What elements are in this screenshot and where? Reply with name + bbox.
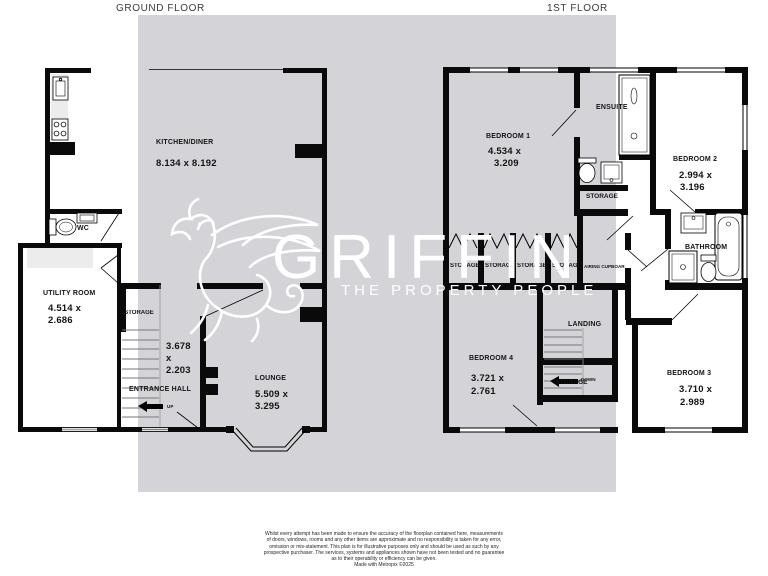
- utility-window: [62, 427, 97, 432]
- floorplan-page: GROUND FLOOR 1ST FLOOR: [0, 0, 768, 576]
- disclaimer-line: Made with Metropix ©2025: [150, 562, 618, 568]
- bedroom1-dims-1: 4.534 x: [488, 146, 521, 157]
- wall: [206, 384, 218, 395]
- wall: [612, 365, 618, 400]
- kitchen-dims: 8.134 x 8.192: [156, 158, 217, 169]
- wc-label: WC: [77, 225, 89, 232]
- lounge-dims-1: 5.509 x: [255, 389, 288, 400]
- window: [555, 428, 600, 433]
- wall: [537, 290, 543, 405]
- disclaimer: Whilst every attempt has been made to en…: [150, 531, 618, 569]
- wall: [600, 427, 618, 433]
- bedroom1-dims-2: 3.209: [494, 158, 519, 169]
- wall: [443, 427, 460, 433]
- wall: [206, 367, 218, 378]
- wall: [443, 67, 449, 433]
- first-floor-title: 1ST FLOOR: [547, 3, 608, 14]
- wall: [302, 426, 310, 433]
- wall: [443, 283, 631, 290]
- wall: [632, 427, 665, 433]
- ff-storage-small-label: STORAGE: [580, 193, 624, 201]
- hob-icon: [52, 119, 68, 140]
- wc-toilet-icon: [49, 219, 76, 235]
- wall: [577, 214, 583, 290]
- wall: [295, 144, 327, 158]
- wall: [322, 68, 327, 432]
- bedroom2-dims-1: 2.994 x: [679, 170, 712, 181]
- bedroom3-dims-1: 3.710 x: [679, 384, 712, 395]
- wall: [121, 283, 161, 289]
- wall: [300, 307, 327, 322]
- wall: [18, 243, 23, 432]
- wall: [742, 150, 748, 215]
- wall: [632, 318, 638, 427]
- wall: [45, 68, 91, 73]
- window: [520, 68, 558, 73]
- ensuite-shower-icon: [619, 75, 650, 155]
- wall: [18, 243, 122, 248]
- airing-cupboard-label: AIRING CUPBOARD: [584, 264, 625, 271]
- ground-floor-title: GROUND FLOOR: [116, 3, 205, 14]
- floorplan-drawing: [0, 0, 768, 576]
- bedroom2-dims-2: 3.196: [680, 182, 705, 193]
- wall: [478, 233, 484, 283]
- wall: [558, 67, 590, 73]
- stairs-dims-3: 2.203: [166, 365, 191, 376]
- wardrobe-label: STORAGE: [517, 263, 545, 271]
- wall: [742, 67, 748, 105]
- landing-label: LANDING: [568, 321, 601, 328]
- wall: [226, 426, 234, 433]
- entrance-hall-label: ENTRANCE HALL: [129, 386, 191, 393]
- wall: [665, 209, 671, 249]
- wall: [612, 290, 618, 365]
- wall: [650, 209, 667, 215]
- ensuite-toilet-icon: [578, 158, 596, 183]
- window: [665, 428, 712, 433]
- wall: [665, 283, 748, 290]
- window: [470, 68, 508, 73]
- bathroom-toilet-icon: [701, 255, 716, 282]
- wall: [45, 142, 75, 155]
- utility-dims-2: 2.686: [48, 315, 73, 326]
- bay-window: [232, 428, 306, 451]
- window: [460, 428, 505, 433]
- wall: [200, 316, 206, 432]
- wall: [121, 283, 126, 332]
- wall: [97, 427, 142, 432]
- bedroom4-dims-1: 3.721 x: [471, 373, 504, 384]
- wardrobe-label: STORAGE: [450, 263, 478, 271]
- bathroom-shower-icon: [669, 251, 697, 283]
- wardrobe-label: STORAGE: [552, 263, 577, 271]
- wall: [505, 427, 555, 433]
- wall: [508, 67, 520, 73]
- kitchen-sink-icon: [53, 77, 68, 100]
- wall: [510, 233, 516, 283]
- bedroom1-label: BEDROOM 1: [486, 133, 530, 140]
- window: [743, 215, 748, 278]
- gf-storage-label: STORAGE: [118, 310, 160, 318]
- bathroom-label: BATHROOM: [685, 244, 727, 251]
- wall: [18, 427, 62, 432]
- wall: [638, 67, 677, 73]
- bedroom3-label: BEDROOM 3: [667, 370, 711, 377]
- bathroom-sink-icon: [681, 213, 706, 233]
- ff-storage-under-label: STORAGE: [549, 379, 594, 388]
- wall: [625, 268, 631, 320]
- wall: [574, 73, 580, 108]
- stairs-dims-2: x: [166, 353, 171, 364]
- wall: [742, 278, 748, 433]
- up-arrow-icon: [138, 401, 163, 412]
- wall: [45, 68, 50, 245]
- up-label: UP: [167, 404, 173, 409]
- kitchen-label: KITCHEN/DINER: [156, 139, 213, 146]
- bedroom2-label: BEDROOM 2: [673, 156, 717, 163]
- ensuite-label: ENSUITE: [596, 104, 628, 111]
- window: [743, 105, 748, 150]
- wc-sink-icon: [77, 213, 97, 223]
- stairs-dims-1: 3.678: [166, 341, 191, 352]
- wall: [545, 233, 551, 283]
- lounge-label: LOUNGE: [255, 375, 286, 382]
- wall: [650, 67, 656, 214]
- lounge-dims-2: 3.295: [255, 401, 280, 412]
- wall: [574, 185, 628, 191]
- wall: [197, 283, 263, 289]
- window: [590, 68, 638, 73]
- utility-counter: [27, 248, 93, 268]
- utility-label: UTILITY ROOM: [43, 290, 95, 297]
- front-door: [142, 427, 168, 432]
- wall: [117, 248, 121, 427]
- wall: [625, 233, 631, 250]
- wall: [540, 395, 618, 402]
- wardrobe-label: STORAGE: [485, 263, 510, 271]
- bedroom4-label: BEDROOM 4: [469, 355, 513, 362]
- window: [677, 68, 725, 73]
- bedroom4-dims-2: 2.761: [471, 386, 496, 397]
- wall: [283, 68, 327, 73]
- bedroom3-dims-2: 2.989: [680, 397, 705, 408]
- utility-dims-1: 4.514 x: [48, 303, 81, 314]
- ensuite-sink-icon: [601, 162, 622, 183]
